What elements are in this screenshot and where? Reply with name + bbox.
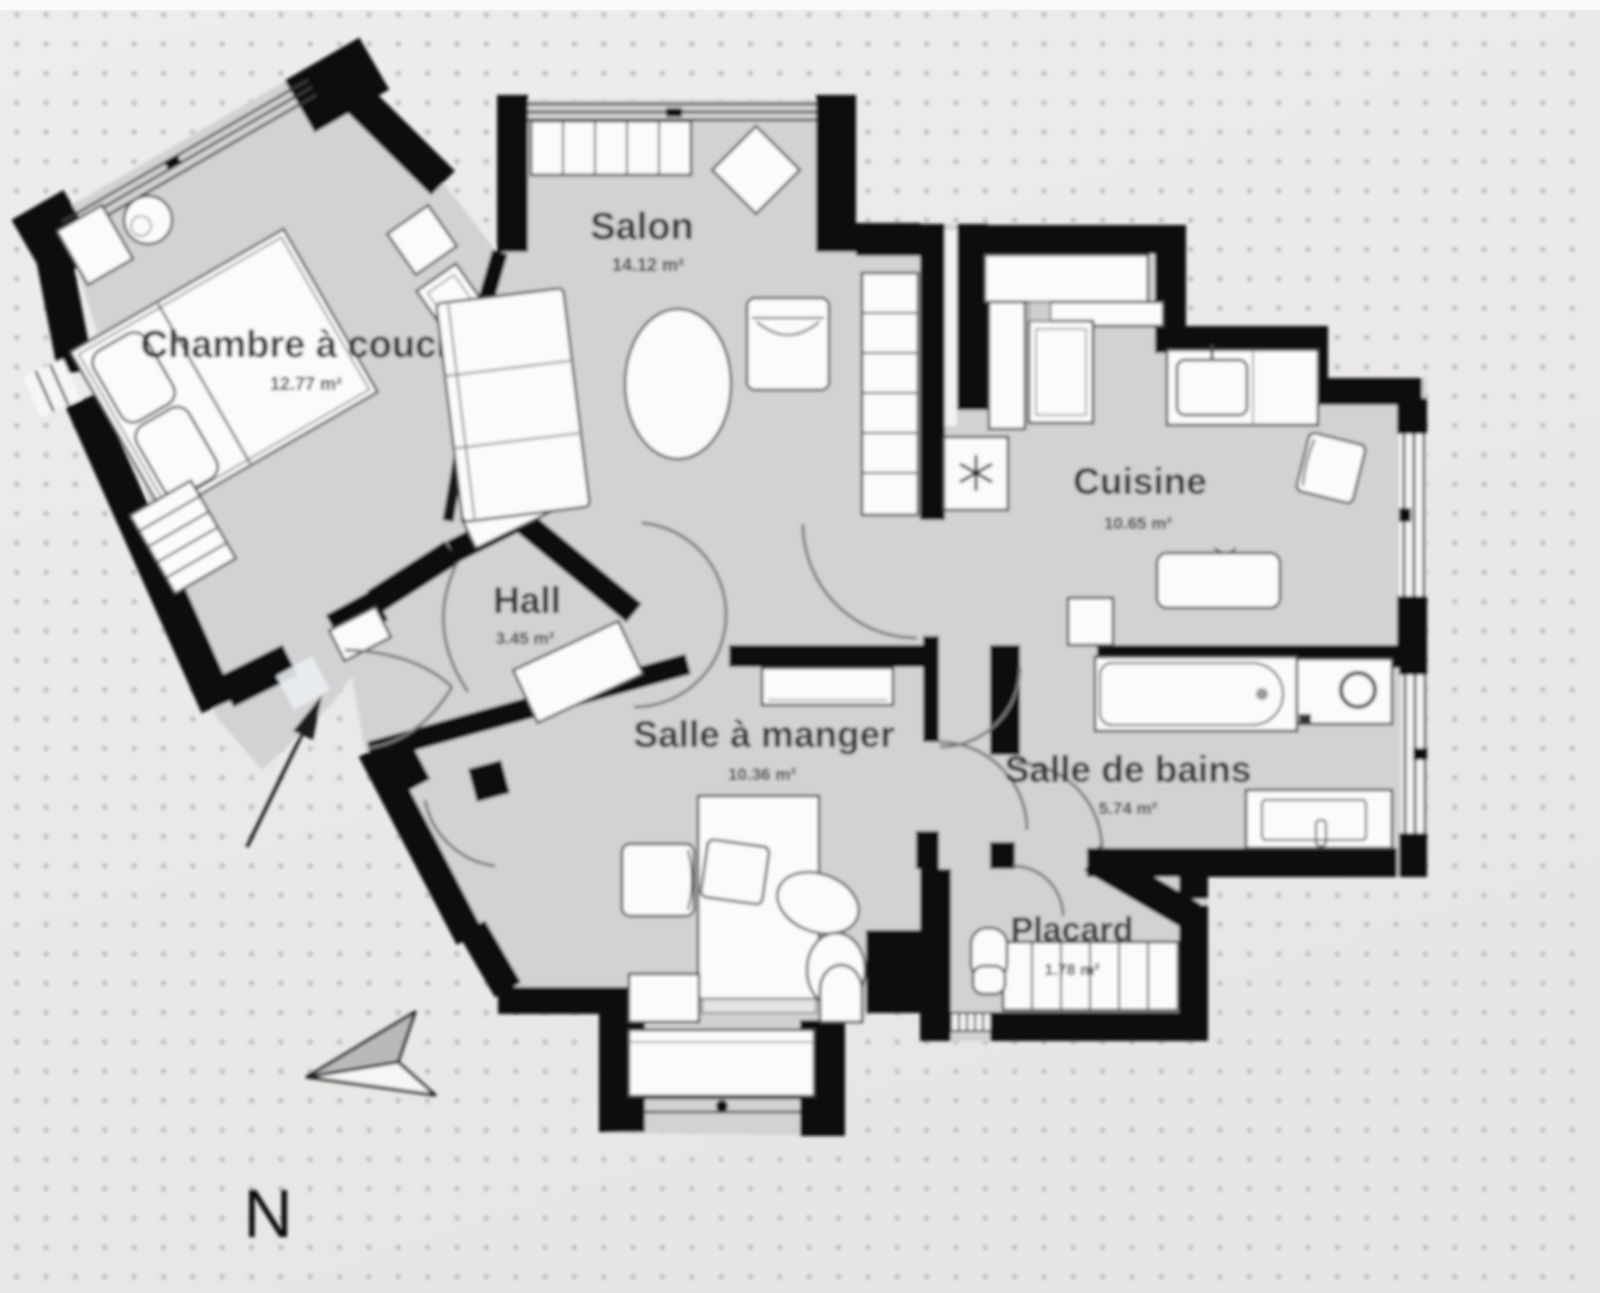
svg-text:Cuisine: Cuisine [1073,461,1207,502]
svg-text:N: N [243,1176,292,1252]
svg-text:12.77 m²: 12.77 m² [270,374,342,394]
svg-text:Hall: Hall [493,580,561,621]
svg-text:10.65 m²: 10.65 m² [1104,514,1172,533]
svg-text:3.45 m²: 3.45 m² [496,629,555,648]
svg-text:Salle de bains: Salle de bains [1005,749,1252,790]
svg-text:Placard: Placard [1011,911,1134,949]
svg-text:1.78 m²: 1.78 m² [1044,962,1099,979]
svg-text:10.36 m²: 10.36 m² [728,765,796,784]
svg-text:5.74 m²: 5.74 m² [1099,799,1158,818]
svg-text:Salon: Salon [590,206,693,248]
svg-text:14.12 m²: 14.12 m² [612,255,684,275]
svg-text:Salle à manger: Salle à manger [633,714,894,755]
